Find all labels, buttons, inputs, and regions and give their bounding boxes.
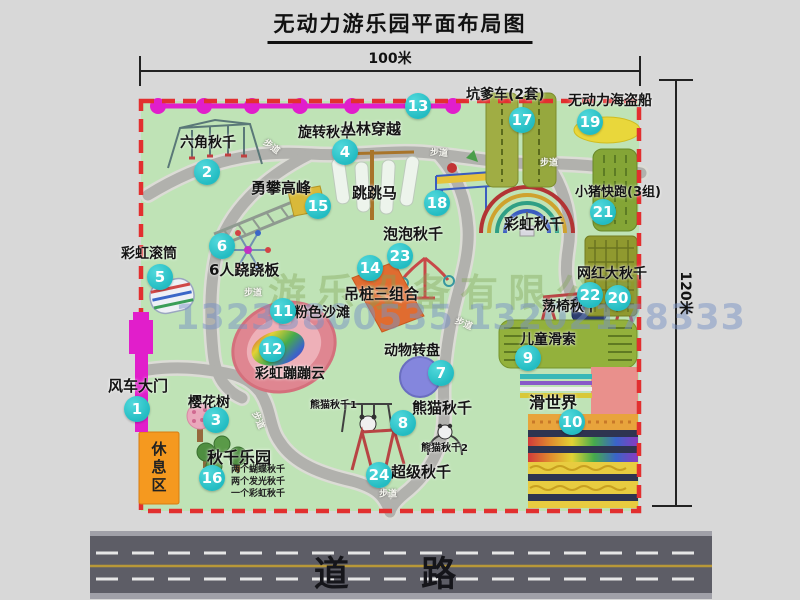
label-pirate-ship: 无动力海盗船 <box>568 94 652 109</box>
label-pink-beach: 粉色沙滩 <box>294 306 350 321</box>
label-rainbow-arch-swing: 彩虹秋千 <box>504 216 564 233</box>
badge-8: 8 <box>390 410 416 436</box>
label-bubble-swing: 泡泡秋千 <box>383 226 443 243</box>
badge-17: 17 <box>509 107 535 133</box>
badge-20: 20 <box>605 285 631 311</box>
label-jungle-crossing: 丛林穿越 <box>341 121 401 138</box>
badge-2: 2 <box>194 159 220 185</box>
label-rainbow-cloud: 彩虹蹦蹦云 <box>255 367 325 382</box>
badge-13: 13 <box>405 93 431 119</box>
trail-label-3: 步道 <box>540 156 558 169</box>
slide-world-icon <box>520 367 638 508</box>
label-panda-swing: 熊猫秋千 <box>412 400 472 417</box>
label-rainbow-roller: 彩虹滚筒 <box>121 247 177 262</box>
label-jumping-horse: 跳跳马 <box>352 185 397 202</box>
badge-4: 4 <box>332 139 358 165</box>
swing-park-notes: 两个蝴蝶秋千 两个发光秋千 一个彩虹秋千 <box>231 464 285 500</box>
badge-6: 6 <box>209 233 235 259</box>
trail-label-4: 步道 <box>244 286 262 299</box>
badge-19: 19 <box>577 109 603 135</box>
label-seesaw: 6人跷跷板 <box>209 262 279 279</box>
badge-24: 24 <box>366 462 392 488</box>
label-net-swing: 网红大秋千 <box>577 267 647 282</box>
swing-note-1: 两个蝴蝶秋千 <box>231 464 285 476</box>
label-panda-swing-1: 熊猫秋千1 <box>310 400 357 411</box>
badge-14: 14 <box>357 255 383 281</box>
badge-16: 16 <box>199 465 225 491</box>
badge-5: 5 <box>147 264 173 290</box>
badge-9: 9 <box>515 345 541 371</box>
badge-7: 7 <box>428 360 454 386</box>
badge-22: 22 <box>577 282 603 308</box>
road-label: 道 路 <box>314 546 486 597</box>
label-panda-swing-2: 熊猫秋千2 <box>421 443 468 454</box>
rest-area-label: 休息区 <box>149 441 170 495</box>
swing-note-2: 两个发光秋千 <box>231 476 285 488</box>
label-climbing-peak: 勇攀高峰 <box>251 180 311 197</box>
badge-10: 10 <box>559 409 585 435</box>
trail-label-2: 步道 <box>430 145 449 159</box>
badge-23: 23 <box>387 243 413 269</box>
badge-12: 12 <box>259 336 285 362</box>
swing-note-3: 一个彩虹秋千 <box>231 488 285 500</box>
badge-15: 15 <box>305 193 331 219</box>
badge-11: 11 <box>270 298 296 324</box>
label-hanging-piles: 吊桩三组合 <box>344 286 419 303</box>
label-pit-cars: 坑爹车(2套) <box>466 88 545 103</box>
badge-1: 1 <box>124 396 150 422</box>
label-hexagon-swing: 六角秋千 <box>180 136 236 151</box>
badge-21: 21 <box>590 199 616 225</box>
badge-3: 3 <box>203 407 229 433</box>
width-dimension-label: 100米 <box>368 48 411 68</box>
label-piggy-run: 小猪快跑(3组) <box>575 186 661 200</box>
park-layout-screenshot: 游乐设备有限公司 13233800535 13202178333 无动力游乐园平… <box>0 0 800 600</box>
badge-18: 18 <box>424 190 450 216</box>
page-title: 无动力游乐园平面布局图 <box>268 8 533 44</box>
label-windmill-gate: 风车大门 <box>108 378 168 395</box>
label-super-swing: 超级秋千 <box>391 464 451 481</box>
trail-label-7: 步道 <box>379 487 397 500</box>
height-dimension-label: 120米 <box>676 271 696 314</box>
label-animal-turntable: 动物转盘 <box>384 344 440 359</box>
